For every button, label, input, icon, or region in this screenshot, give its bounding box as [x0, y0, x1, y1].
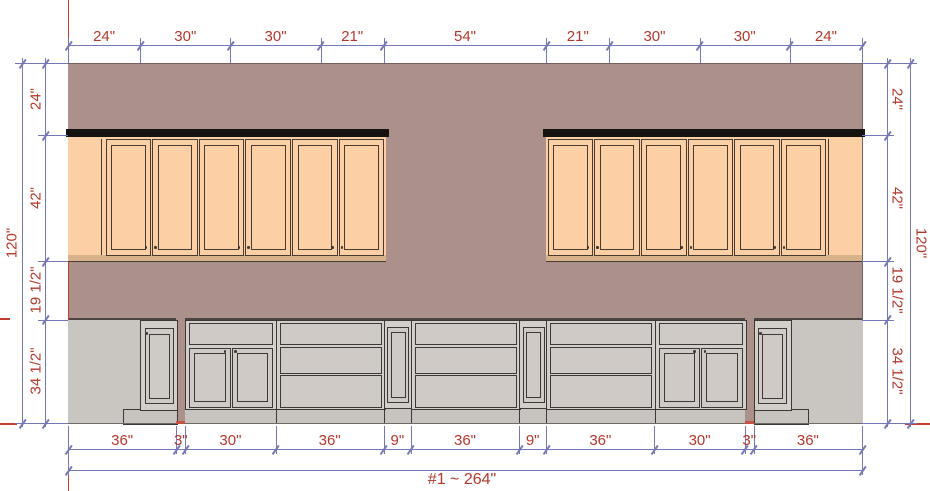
upper-door-panel	[646, 145, 681, 250]
knob-icon	[773, 246, 776, 249]
toe-seam	[411, 409, 412, 423]
knob-icon	[145, 246, 148, 249]
dimension-label: 34 1/2"	[28, 348, 45, 395]
toe-kick	[185, 408, 744, 424]
counter-line	[68, 318, 176, 320]
dimension-label: 30"	[174, 28, 196, 45]
upper-stile-line	[101, 139, 102, 255]
drawer-front	[659, 323, 743, 346]
dimension-label: 21"	[341, 28, 363, 45]
dimension-label: 36"	[589, 432, 611, 449]
door-panel	[706, 353, 738, 402]
red-guide-mark	[0, 318, 10, 320]
dimension-label: 54"	[454, 28, 476, 45]
upper-door-panel	[740, 145, 775, 250]
drawer-front	[415, 323, 517, 346]
upper-door-panel	[344, 145, 379, 250]
red-guide-vertical	[68, 261, 69, 320]
knob-icon	[587, 246, 590, 249]
crown-molding-right	[543, 129, 865, 137]
dim-line-left-inner	[45, 58, 46, 427]
toe-seam	[546, 409, 547, 423]
toe-seam	[655, 409, 656, 423]
overall-dimension-label: #1 ~ 264"	[428, 471, 496, 489]
end-panel-right	[790, 320, 863, 424]
pilaster-door-panel	[149, 334, 170, 399]
dim-line-overall	[68, 470, 862, 471]
dim-extension	[38, 135, 68, 136]
dimension-label: 30"	[643, 28, 665, 45]
dimension-label: 36"	[319, 432, 341, 449]
dim-extension	[862, 261, 894, 262]
toe-seam	[519, 409, 520, 423]
drawer-front	[550, 323, 652, 346]
knob-icon	[234, 350, 237, 353]
knob-icon	[693, 350, 696, 353]
drawer-front	[415, 375, 517, 408]
cabinet-elevation-drawing: Hood Spice Cooktop Spice #1 ~ 264" 24"30…	[0, 0, 930, 491]
dimension-label: 24"	[815, 28, 837, 45]
red-gap-mark	[745, 421, 754, 425]
knob-icon	[680, 246, 683, 249]
upper-door-panel	[786, 145, 821, 250]
dim-extension	[862, 320, 894, 321]
red-gap-mark	[176, 421, 185, 425]
dimension-label: 24"	[889, 88, 906, 110]
dimension-label: 120"	[4, 228, 21, 258]
floor-line	[68, 423, 862, 424]
dimension-label: 9"	[526, 432, 540, 449]
drawer-front	[280, 375, 382, 408]
knob-icon	[783, 246, 786, 249]
knob-icon	[154, 246, 157, 249]
knob-icon	[596, 246, 599, 249]
dim-line-top	[68, 45, 862, 46]
knob-icon	[759, 332, 762, 335]
dim-extension	[38, 261, 68, 262]
drawer-front	[550, 347, 652, 375]
drawer-front	[280, 347, 382, 375]
spice-door-panel	[391, 332, 406, 398]
door-panel	[194, 353, 226, 402]
pilaster-door-panel	[762, 334, 783, 399]
dimension-label: 34 1/2"	[889, 348, 906, 395]
upper-door-panel	[553, 145, 588, 250]
upper-door-panel	[111, 145, 146, 250]
dim-line-left-outer	[22, 58, 23, 427]
dimension-label: 30"	[734, 28, 756, 45]
dimension-label: 42"	[28, 187, 45, 209]
dimension-label: 19 1/2"	[889, 267, 906, 314]
knob-icon	[341, 246, 344, 249]
drawer-front	[550, 375, 652, 408]
dimension-label: 24"	[93, 28, 115, 45]
dim-line-right-outer	[910, 58, 911, 427]
upper-door-panel	[204, 145, 239, 250]
drawer-front	[415, 347, 517, 375]
upper-door-panel	[600, 145, 635, 250]
upper-door-panel	[298, 145, 333, 250]
toe-seam	[276, 409, 277, 423]
drawer-front	[189, 323, 273, 346]
upper-door-panel	[251, 145, 286, 250]
dim-extension	[862, 135, 894, 136]
end-panel-left	[68, 320, 141, 424]
dimension-label: 30"	[265, 28, 287, 45]
drawer-front	[280, 323, 382, 346]
knob-icon	[690, 246, 693, 249]
knob-icon	[704, 350, 707, 353]
door-panel	[664, 353, 696, 402]
dimension-label: 3"	[742, 432, 756, 449]
dimension-label: 21"	[567, 28, 589, 45]
knob-icon	[247, 246, 250, 249]
dimension-label: 36"	[111, 432, 133, 449]
dimension-label: 9"	[390, 432, 404, 449]
spice-door-panel	[526, 332, 541, 398]
dimension-label: 42"	[889, 187, 906, 209]
dimension-label: 3"	[174, 432, 188, 449]
upper-door-panel	[158, 145, 193, 250]
knob-icon	[331, 246, 334, 249]
dimension-label: 30"	[219, 432, 241, 449]
door-panel	[237, 353, 269, 402]
dimension-label: 24"	[28, 88, 45, 110]
knob-icon	[146, 332, 149, 335]
dimension-label: 36"	[454, 432, 476, 449]
dimension-label: 19 1/2"	[28, 267, 45, 314]
dimension-label: 30"	[689, 432, 711, 449]
dimension-label: 36"	[797, 432, 819, 449]
toe-seam	[384, 409, 385, 423]
upper-door-panel	[693, 145, 728, 250]
crown-molding-left	[66, 129, 389, 137]
counter-line	[754, 318, 862, 320]
upper-stile-line	[828, 139, 829, 255]
counter-line	[185, 318, 744, 320]
dimension-label: 120"	[913, 228, 930, 258]
